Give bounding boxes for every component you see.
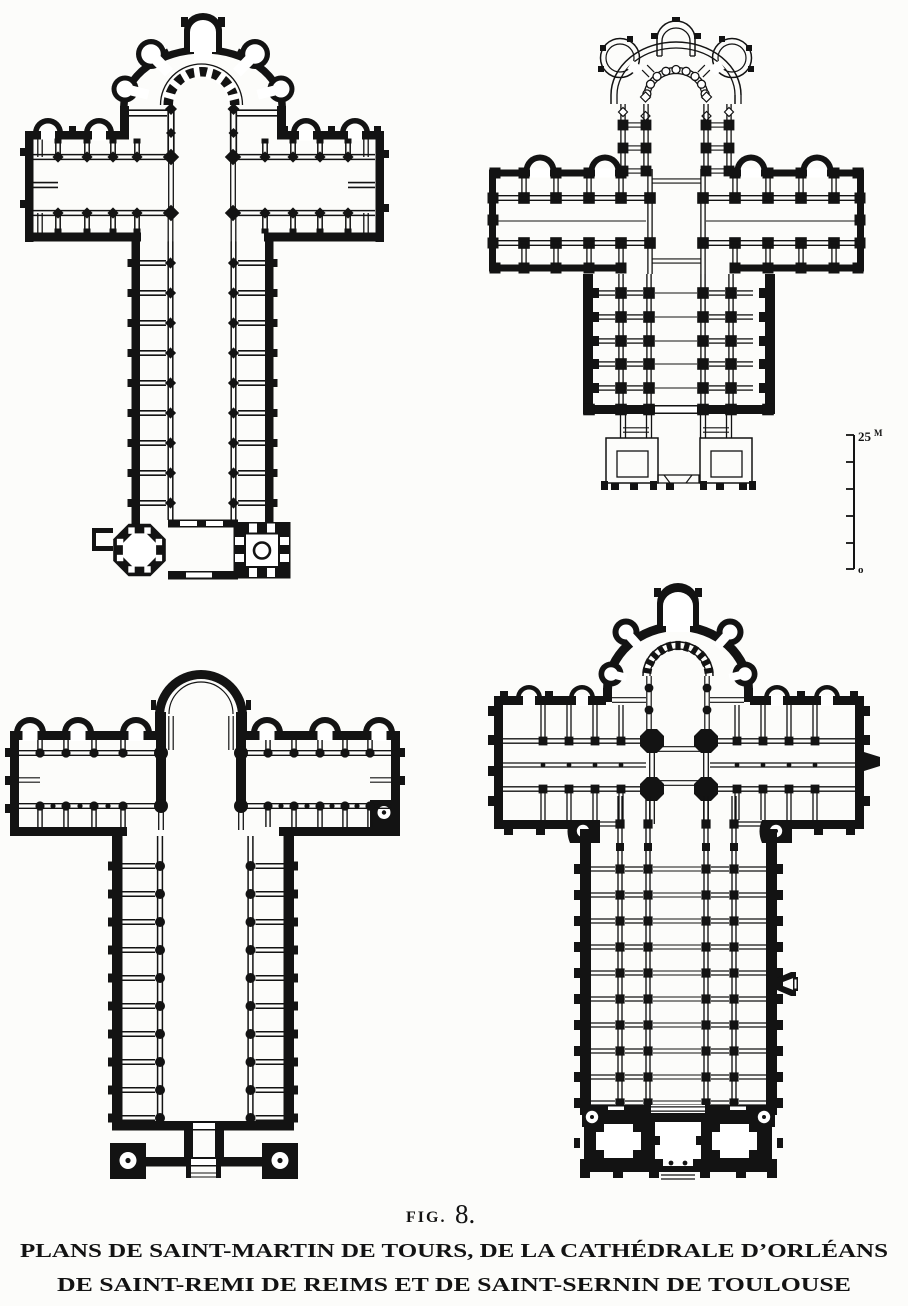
svg-text:FIG.: FIG.	[406, 1209, 446, 1226]
svg-text:8.: 8.	[455, 1199, 475, 1229]
svg-text:DE SAINT-REMI DE REIMS ET DE S: DE SAINT-REMI DE REIMS ET DE SAINT-SERNI…	[57, 1274, 851, 1296]
svg-text:25: 25	[858, 429, 872, 444]
svg-text:PLANS DE SAINT-MARTIN DE TOURS: PLANS DE SAINT-MARTIN DE TOURS, DE LA CA…	[20, 1239, 888, 1262]
svg-text:o: o	[858, 564, 864, 576]
svg-text:M: M	[874, 428, 883, 438]
